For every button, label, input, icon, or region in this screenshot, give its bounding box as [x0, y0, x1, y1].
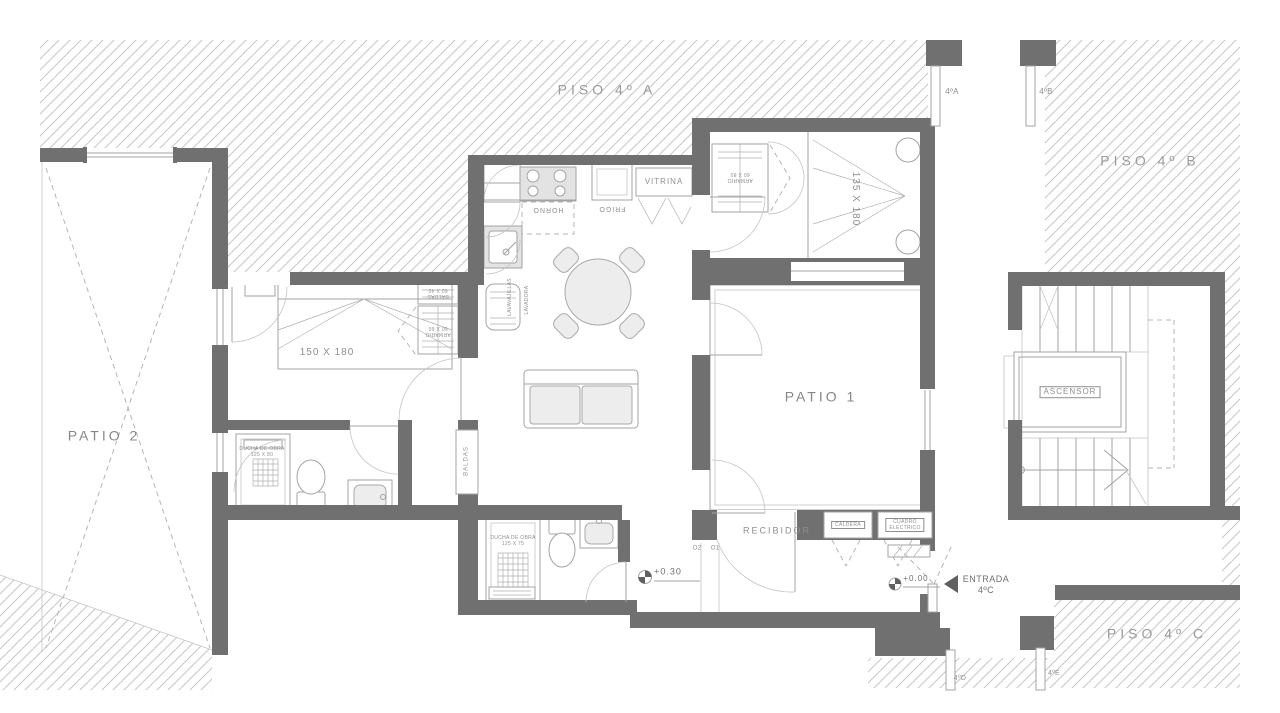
patio-1-area [710, 285, 930, 510]
patio-2-area [42, 162, 210, 652]
kitchen-fixtures [484, 164, 692, 341]
bathroom-2-fixtures [486, 518, 618, 602]
floor-plan-drawing [0, 0, 1280, 713]
stairwell [1004, 286, 1174, 506]
bathroom-1-fixtures [234, 434, 392, 512]
living-room-fixtures [524, 370, 638, 428]
hatch-areas [0, 40, 1240, 690]
floor-plan: PISO 4º A PISO 4º B PISO 4º C PATIO 2 PA… [0, 0, 1280, 713]
bedroom-left-fixtures [245, 280, 458, 369]
